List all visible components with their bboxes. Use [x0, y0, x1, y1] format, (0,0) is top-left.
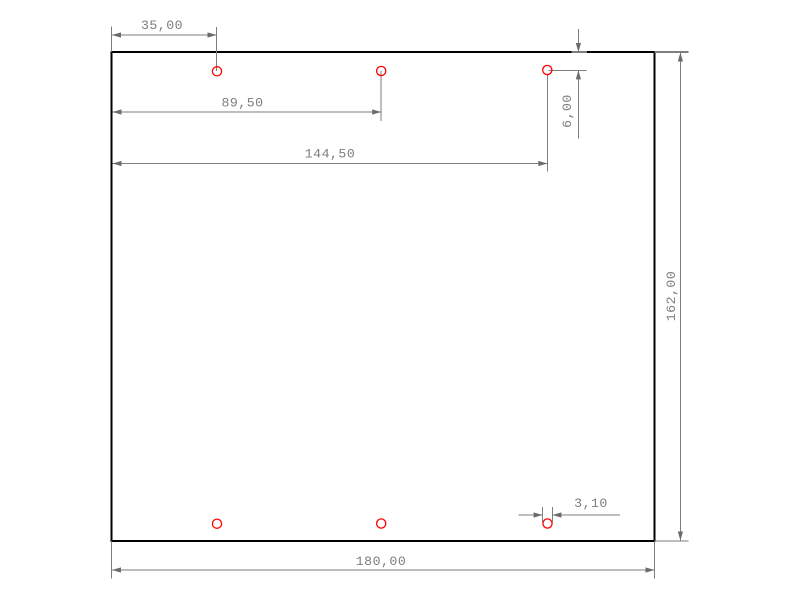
svg-text:180,00: 180,00: [356, 554, 406, 569]
svg-text:6,00: 6,00: [560, 94, 575, 128]
svg-text:35,00: 35,00: [141, 18, 183, 33]
svg-text:162,00: 162,00: [664, 271, 679, 321]
svg-text:144,50: 144,50: [305, 146, 355, 161]
svg-text:89,50: 89,50: [221, 96, 263, 111]
svg-text:3,10: 3,10: [574, 496, 608, 511]
